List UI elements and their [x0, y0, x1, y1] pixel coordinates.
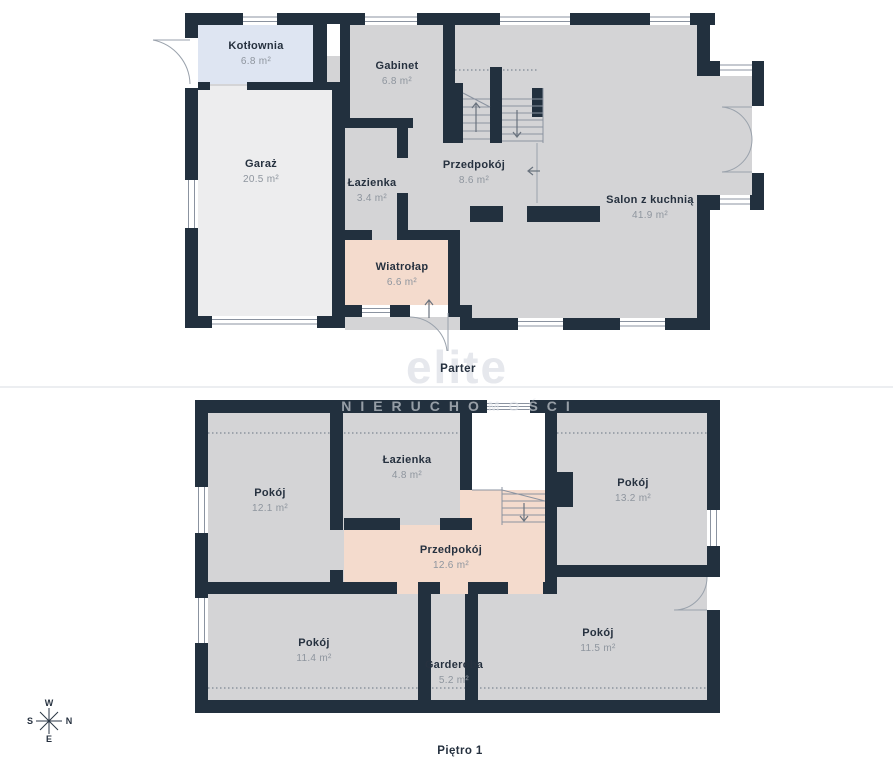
floor-plan-page: W N S E elite NIERUCHOMOŚCI Kotłownia 6.…	[0, 0, 893, 768]
room-label-pokoj-115: Pokój 11.5 m²	[580, 627, 615, 654]
room-label-lazienka-pietro: Łazienka 4.8 m²	[383, 454, 432, 481]
compass-east-label: E	[46, 734, 52, 744]
room-label-lazienka-parter: Łazienka 3.4 m²	[348, 177, 397, 204]
room-label-wiatrolap: Wiatrołap 6.6 m²	[376, 261, 429, 288]
room-label-garaz: Garaż 20.5 m²	[243, 158, 279, 185]
boiler-exterior-door-swing-icon	[153, 40, 190, 84]
room-label-salon: Salon z kuchnią 41.9 m²	[606, 194, 694, 221]
room-label-przedpokoj-pietro: Przedpokój 12.6 m²	[420, 544, 482, 571]
room-label-pokoj-132: Pokój 13.2 m²	[615, 477, 651, 504]
room-label-kotlownia: Kotłownia 6.8 m²	[228, 40, 283, 67]
compass-west-label: W	[45, 698, 54, 708]
floor-label-pietro-1: Piętro 1	[437, 745, 482, 757]
room-label-garderoba: Garderoba 5.2 m²	[425, 659, 483, 686]
room-label-pokoj-121: Pokój 12.1 m²	[252, 487, 288, 514]
room-label-pokoj-114: Pokój 11.4 m²	[296, 637, 331, 664]
floor-label-parter: Parter	[440, 363, 476, 375]
compass-north-label: N	[66, 716, 73, 726]
compass-south-label: S	[27, 716, 33, 726]
room-label-przedpokoj-parter: Przedpokój 8.6 m²	[443, 159, 505, 186]
watermark-subtitle: NIERUCHOMOŚCI	[341, 398, 579, 414]
room-label-gabinet: Gabinet 6.8 m²	[375, 60, 418, 87]
compass-icon: W N S E	[27, 698, 72, 744]
